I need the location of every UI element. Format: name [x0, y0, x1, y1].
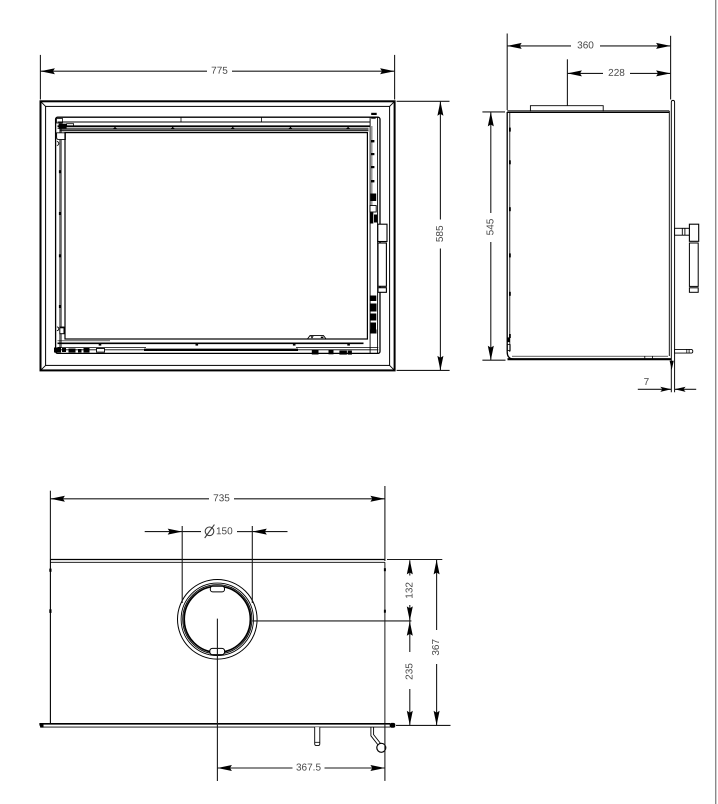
svg-text:585: 585 — [435, 225, 446, 242]
svg-text:367: 367 — [431, 639, 442, 656]
svg-text:545: 545 — [485, 218, 496, 235]
svg-text:132: 132 — [404, 582, 415, 599]
svg-text:775: 775 — [211, 66, 228, 77]
svg-text:7: 7 — [644, 377, 650, 388]
svg-text:150: 150 — [216, 526, 233, 537]
svg-text:735: 735 — [213, 493, 230, 504]
svg-text:360: 360 — [577, 40, 594, 51]
svg-text:367.5: 367.5 — [296, 762, 321, 773]
svg-text:235: 235 — [404, 663, 415, 680]
svg-text:228: 228 — [608, 68, 625, 79]
